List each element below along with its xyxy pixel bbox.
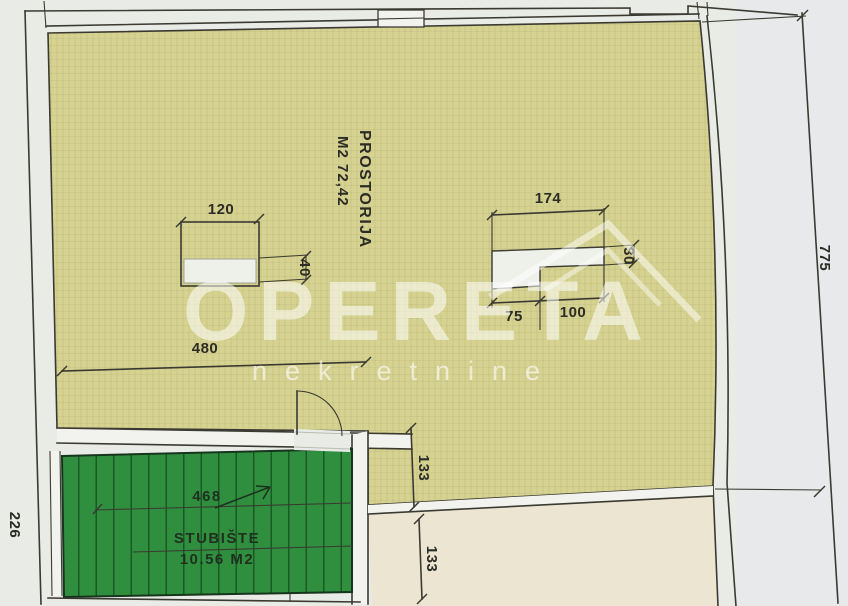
paper-margin-right: [736, 0, 848, 606]
dim-label-775: 775: [816, 245, 833, 272]
staircase: 468 STUBIŠTE 10.56 M2: [62, 449, 352, 597]
dim-label-120: 120: [208, 201, 235, 218]
stairs-area-label: 10.56 M2: [180, 551, 255, 568]
floor-plan-drawing: 468 STUBIŠTE 10.56 M2 480: [0, 0, 848, 606]
dim-label-133-upper: 133: [415, 455, 432, 482]
left-wall-strip: [50, 451, 62, 596]
room-area-label: M2 72,42: [334, 136, 351, 207]
room-name-label: PROSTORIJA: [356, 130, 373, 249]
dim-label-174: 174: [535, 190, 562, 207]
stairs-run-dimension: 468: [192, 488, 222, 505]
scanned-floor-plan: 468 STUBIŠTE 10.56 M2 480: [0, 0, 848, 606]
watermark-brand: OPERETA: [183, 264, 653, 358]
dim-label-133-lower: 133: [423, 546, 440, 573]
dim-label-226: 226: [6, 512, 23, 539]
stairs-right-wall: [352, 431, 368, 604]
stairs-name-label: STUBIŠTE: [174, 529, 260, 547]
watermark-subtitle: nekretnine: [252, 356, 558, 386]
